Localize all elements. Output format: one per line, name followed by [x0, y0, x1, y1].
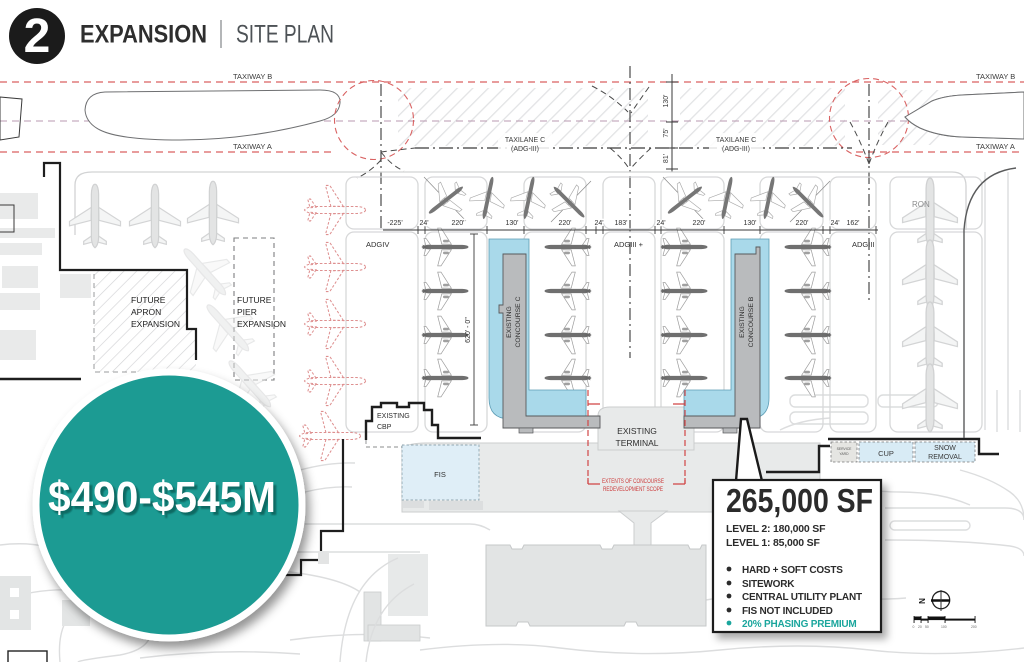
svg-text:CBP: CBP — [377, 424, 392, 431]
svg-text:(ADG-III): (ADG-III) — [511, 146, 539, 153]
svg-text:SERVICE: SERVICE — [837, 447, 853, 451]
svg-text:REDEVELOPMENT SCOPE: REDEVELOPMENT SCOPE — [603, 487, 663, 493]
svg-text:LEVEL 2: 180,000 SF: LEVEL 2: 180,000 SF — [726, 523, 826, 535]
svg-text:130': 130' — [663, 94, 670, 107]
svg-text:REMOVAL: REMOVAL — [928, 454, 962, 461]
svg-text:ADGIII +: ADGIII + — [614, 240, 644, 249]
svg-text:TAXILANE C: TAXILANE C — [505, 137, 545, 144]
svg-text:220': 220' — [692, 220, 705, 227]
svg-text:YARD: YARD — [839, 452, 849, 456]
svg-text:TAXIWAY B: TAXIWAY B — [233, 72, 272, 81]
svg-text:EXTENTS OF CONCOURSE: EXTENTS OF CONCOURSE — [602, 479, 664, 485]
svg-text:LEVEL 1: 85,000 SF: LEVEL 1: 85,000 SF — [726, 537, 820, 549]
svg-text:TERMINAL: TERMINAL — [616, 438, 659, 448]
svg-text:20% PHASING PREMIUM: 20% PHASING PREMIUM — [742, 619, 857, 630]
svg-text:EXISTING: EXISTING — [377, 413, 410, 420]
svg-text:FUTURE: FUTURE — [237, 295, 272, 305]
svg-text:-225': -225' — [387, 220, 402, 227]
svg-text:$490-$545M: $490-$545M — [48, 473, 276, 522]
svg-text:CONCOURSE C: CONCOURSE C — [515, 296, 522, 347]
svg-text:FUTURE: FUTURE — [131, 295, 166, 305]
svg-text:ADGIII: ADGIII — [852, 240, 875, 249]
svg-text:CONCOURSE B: CONCOURSE B — [748, 296, 755, 347]
svg-text:100: 100 — [941, 625, 947, 629]
svg-text:2: 2 — [24, 10, 51, 63]
svg-text:CENTRAL UTILITY PLANT: CENTRAL UTILITY PLANT — [742, 592, 862, 603]
svg-text:620' - 0": 620' - 0" — [465, 317, 472, 343]
svg-text:130': 130' — [743, 220, 756, 227]
svg-text:TAXIWAY A: TAXIWAY A — [233, 142, 272, 151]
svg-text:EXPANSION: EXPANSION — [131, 319, 180, 329]
svg-text:FIS: FIS — [434, 470, 446, 479]
svg-text:RON: RON — [912, 200, 930, 209]
svg-text:24': 24' — [419, 220, 428, 227]
svg-text:20: 20 — [918, 625, 922, 629]
svg-text:24': 24' — [830, 220, 839, 227]
svg-text:APRON: APRON — [131, 307, 161, 317]
svg-text:220': 220' — [451, 220, 464, 227]
svg-text:N: N — [918, 598, 927, 604]
svg-text:EXISTING: EXISTING — [739, 306, 746, 338]
svg-text:SNOW: SNOW — [934, 445, 956, 452]
svg-text:0: 0 — [913, 625, 915, 629]
svg-text:ADGIV: ADGIV — [366, 240, 389, 249]
svg-text:TAXILANE C: TAXILANE C — [716, 137, 756, 144]
svg-text:PIER: PIER — [237, 307, 257, 317]
svg-text:24': 24' — [656, 220, 665, 227]
svg-text:(ADG-III): (ADG-III) — [722, 146, 750, 153]
svg-text:162': 162' — [846, 220, 859, 227]
svg-text:50: 50 — [925, 625, 929, 629]
svg-text:TAXIWAY A: TAXIWAY A — [976, 142, 1015, 151]
svg-text:EXISTING: EXISTING — [617, 426, 657, 436]
svg-text:EXISTING: EXISTING — [506, 306, 513, 338]
svg-text:EXPANSION: EXPANSION — [237, 319, 286, 329]
svg-text:EXPANSION: EXPANSION — [80, 21, 207, 49]
svg-text:81': 81' — [663, 154, 670, 163]
svg-text:FIS NOT INCLUDED: FIS NOT INCLUDED — [742, 606, 833, 617]
svg-text:220': 220' — [795, 220, 808, 227]
svg-text:SITEWORK: SITEWORK — [742, 579, 795, 590]
svg-text:SITE PLAN: SITE PLAN — [236, 21, 334, 49]
svg-text:220': 220' — [558, 220, 571, 227]
svg-text:183': 183' — [614, 220, 627, 227]
svg-text:HARD + SOFT COSTS: HARD + SOFT COSTS — [742, 565, 843, 576]
svg-text:CUP: CUP — [878, 449, 894, 458]
svg-text:130': 130' — [505, 220, 518, 227]
svg-text:24': 24' — [594, 220, 603, 227]
svg-text:TAXIWAY B: TAXIWAY B — [976, 72, 1015, 81]
svg-text:265,000 SF: 265,000 SF — [726, 482, 873, 519]
svg-text:200: 200 — [971, 625, 977, 629]
svg-text:75': 75' — [663, 128, 670, 137]
